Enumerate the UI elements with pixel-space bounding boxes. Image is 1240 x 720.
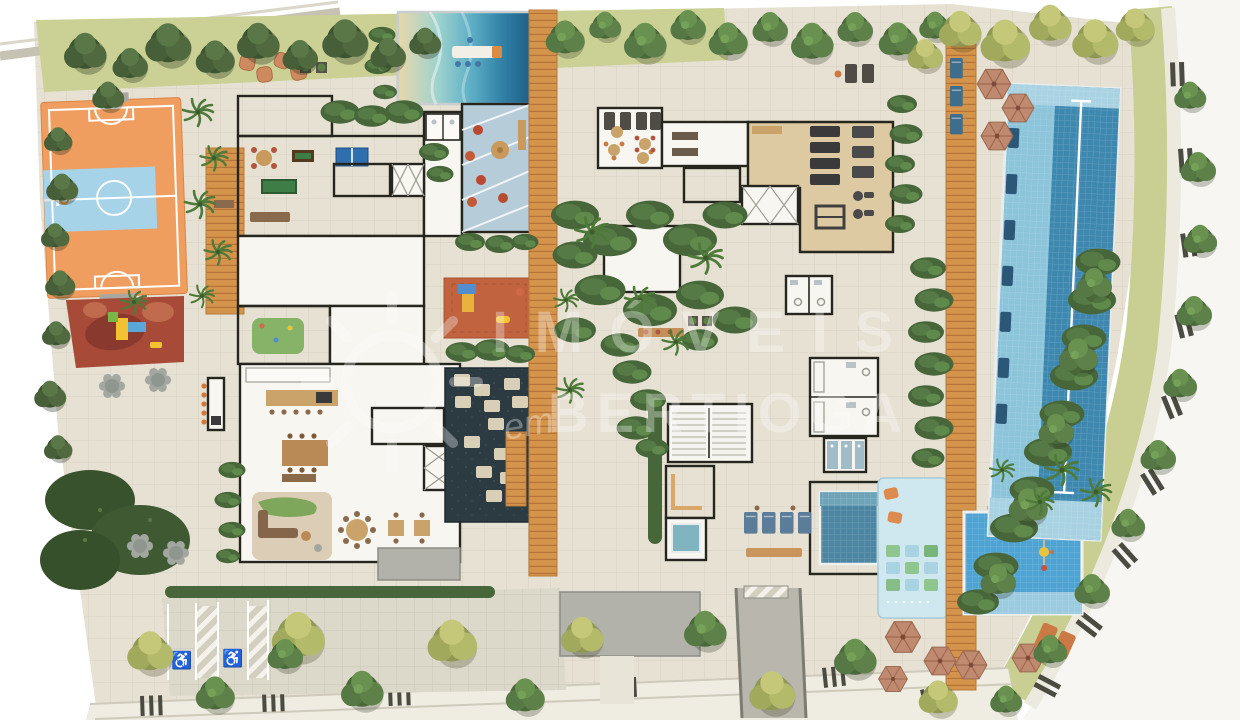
parking-hedge (165, 586, 495, 598)
entrance-walk (600, 656, 634, 704)
entrance-canopy-left (378, 548, 460, 580)
gym-bench (752, 126, 782, 134)
watermark-line2: BERTIOGA (548, 381, 910, 444)
wood-bench (746, 548, 802, 557)
garage-gate (744, 586, 788, 598)
bench-room (662, 122, 748, 166)
play-mats (886, 545, 938, 591)
bbq-counter (201, 378, 224, 430)
accessible-parking-icon: ♿ (171, 650, 192, 670)
accessible-parking-icon: ♿ (222, 648, 243, 668)
deck-bench (214, 200, 234, 208)
splash-pad (878, 478, 948, 618)
elevators (392, 164, 424, 196)
boardwalk-loungers (950, 58, 963, 134)
no-parking-hatch (249, 606, 267, 678)
elevators-t2 (742, 186, 798, 224)
lounge-area (252, 492, 332, 560)
sideboard (282, 474, 316, 482)
screenshot: ♿ ♿ (0, 0, 1240, 720)
paver-stripes (140, 695, 163, 716)
no-parking-hatch (197, 606, 217, 678)
site-plan-rendering: ♿ ♿ (0, 0, 1240, 720)
small-playground (66, 291, 184, 368)
wc-cells (426, 114, 460, 140)
spa-pool (810, 482, 888, 574)
main-boardwalk (529, 10, 557, 576)
beach-entry-pool (398, 12, 530, 104)
cold-plunge (666, 518, 706, 560)
